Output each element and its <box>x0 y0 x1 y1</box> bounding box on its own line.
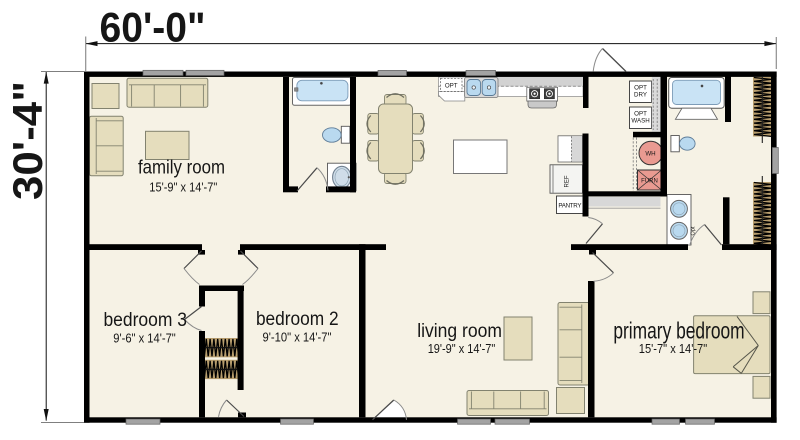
svg-text:living room: living room <box>417 320 502 342</box>
svg-text:PANTRY: PANTRY <box>558 202 581 209</box>
svg-text:bedroom 3: bedroom 3 <box>103 309 187 331</box>
svg-text:bedroom 2: bedroom 2 <box>256 308 339 330</box>
svg-text:REF: REF <box>565 175 571 187</box>
svg-text:15'-9" x 14'-7": 15'-9" x 14'-7" <box>149 180 217 195</box>
svg-text:OPT: OPT <box>634 110 647 117</box>
svg-text:60'-0": 60'-0" <box>100 4 206 51</box>
svg-text:19'-9" x 14'-7": 19'-9" x 14'-7" <box>428 341 496 356</box>
svg-text:WH: WH <box>645 150 655 157</box>
svg-text:primary bedroom: primary bedroom <box>613 317 744 343</box>
svg-text:9'-10" x 14'-7": 9'-10" x 14'-7" <box>263 330 332 345</box>
svg-text:FURN: FURN <box>641 178 658 184</box>
svg-text:30'-4": 30'-4" <box>4 81 51 200</box>
svg-text:WASH: WASH <box>631 117 649 124</box>
svg-text:family room: family room <box>138 157 225 179</box>
svg-text:OPT: OPT <box>445 82 458 89</box>
svg-text:OPT: OPT <box>634 84 647 91</box>
svg-text:15'-7" x 14'-7": 15'-7" x 14'-7" <box>639 341 708 356</box>
svg-text:DRY: DRY <box>634 91 647 98</box>
svg-text:9'-6" x 14'-7": 9'-6" x 14'-7" <box>113 330 176 345</box>
